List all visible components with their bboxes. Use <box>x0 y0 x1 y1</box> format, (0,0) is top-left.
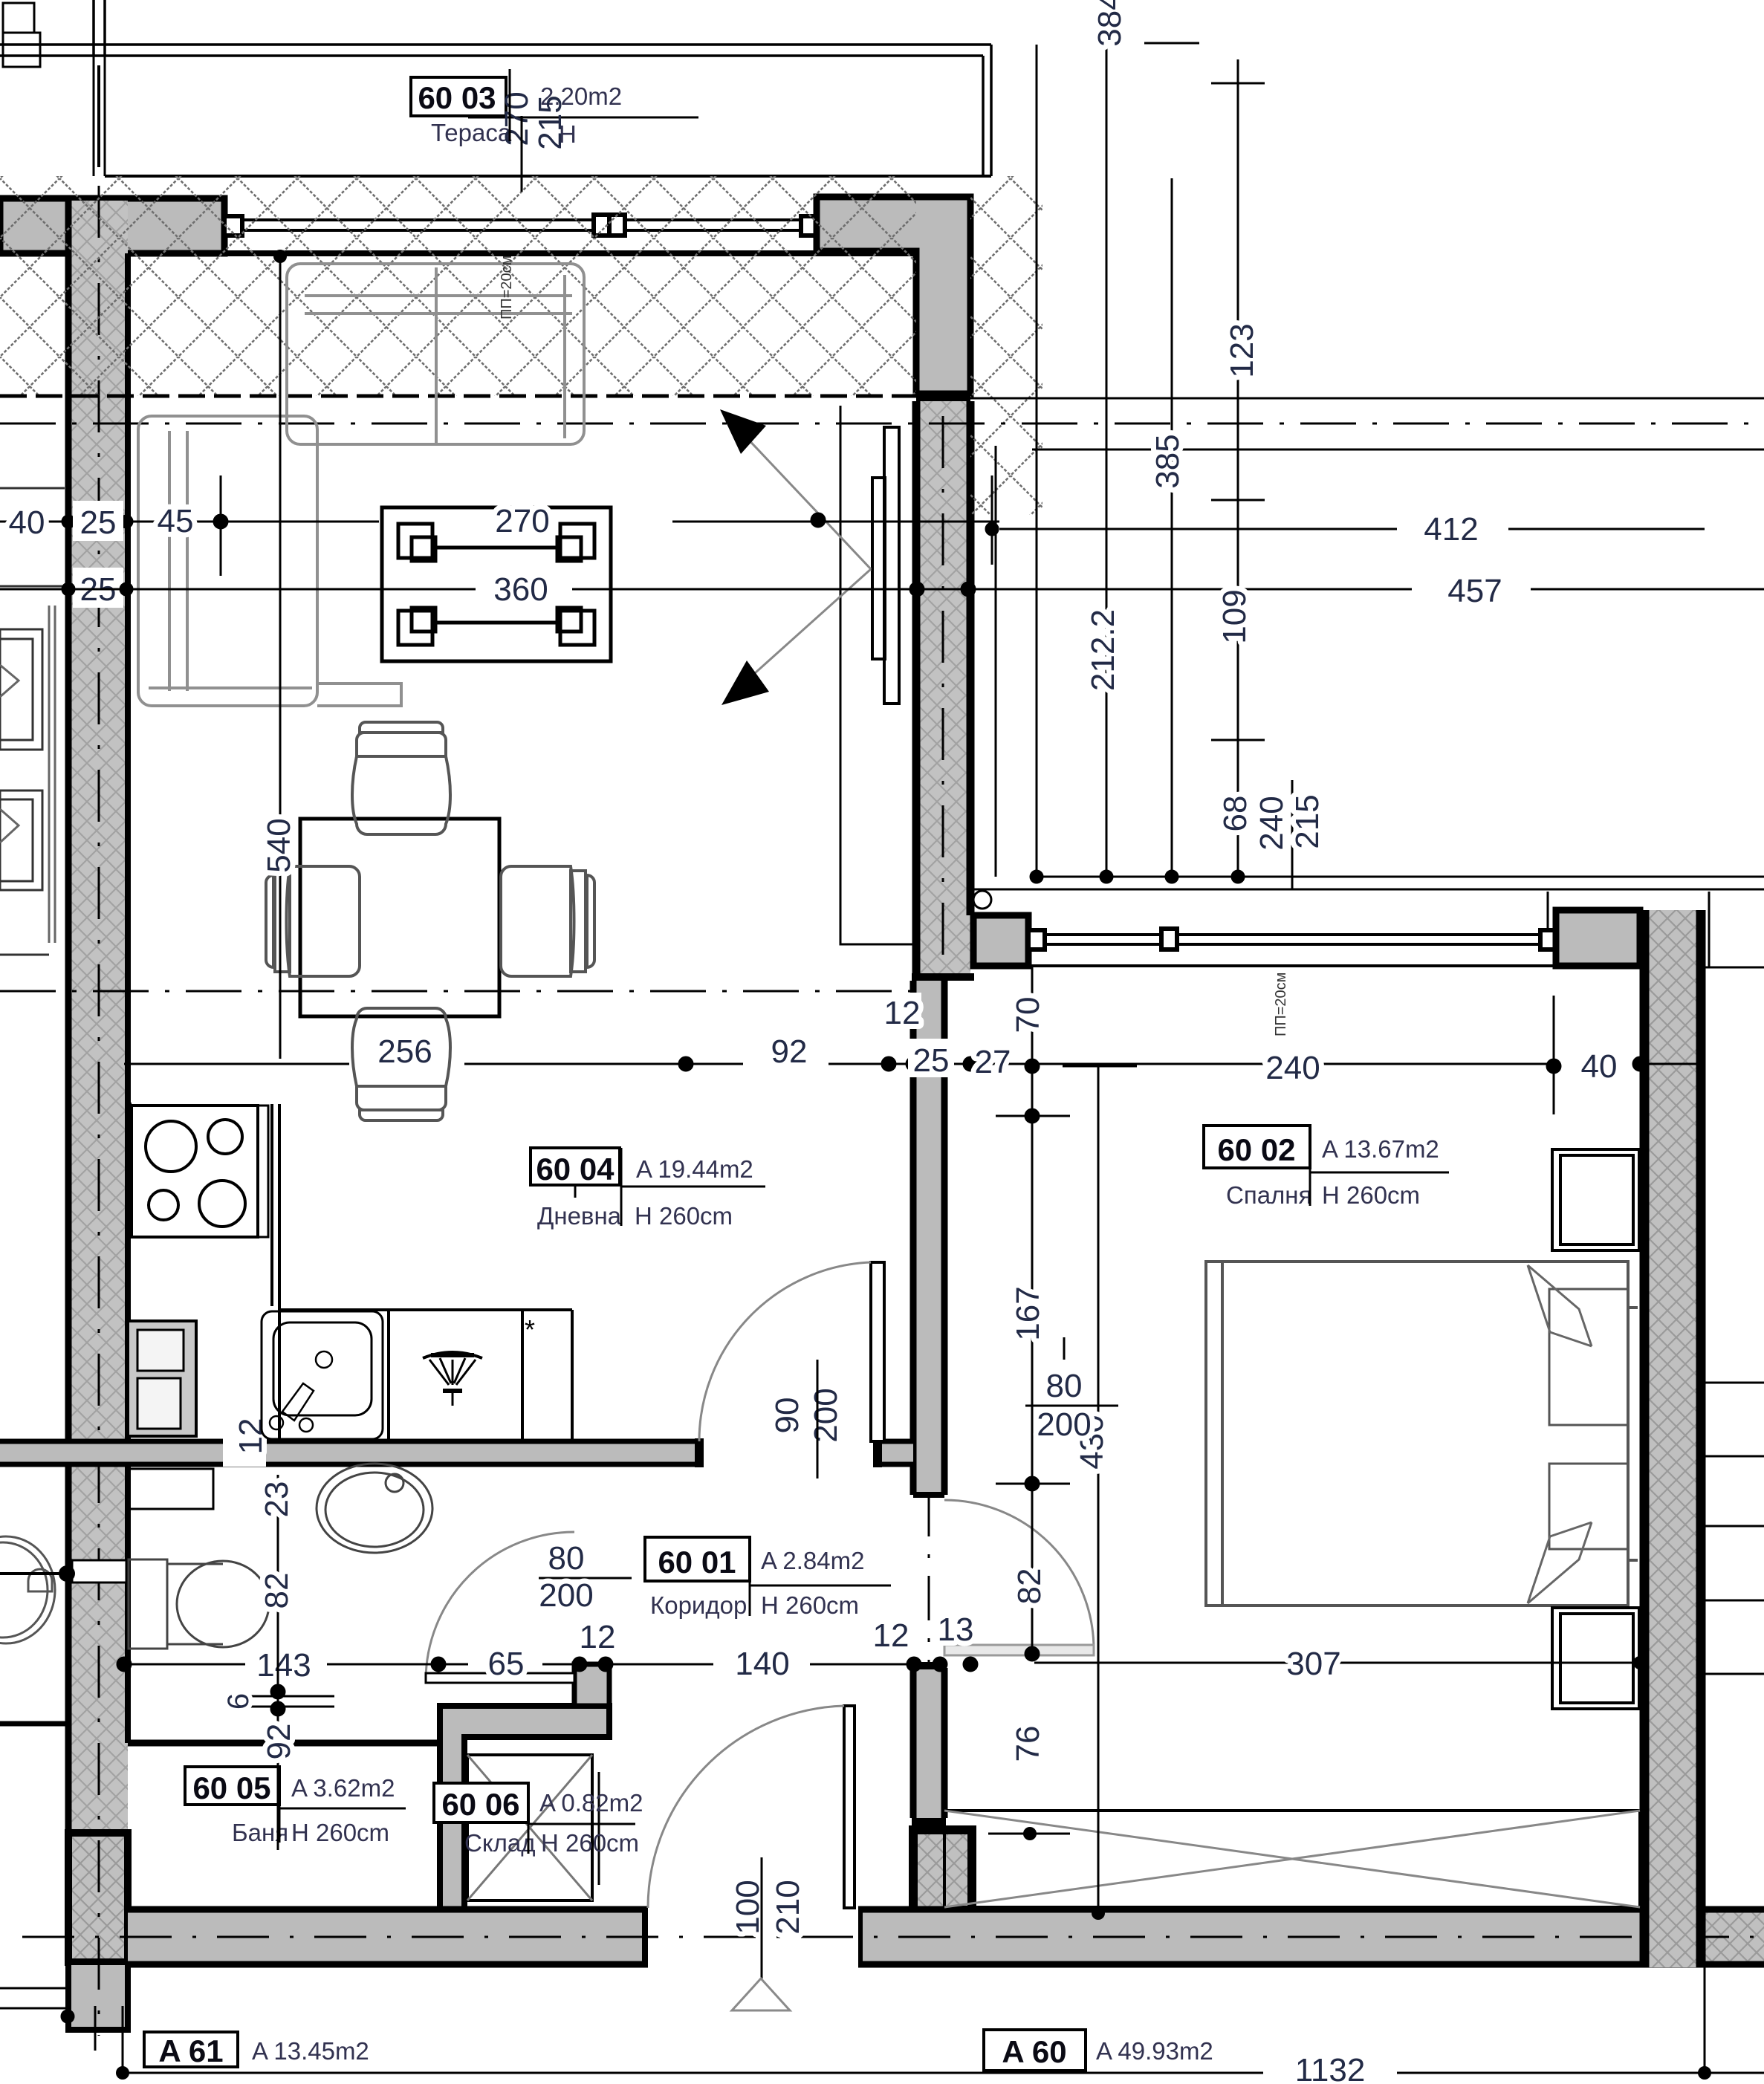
svg-text:68: 68 <box>1217 796 1254 832</box>
svg-text:6: 6 <box>222 1693 255 1710</box>
svg-text:23: 23 <box>259 1481 295 1518</box>
svg-text:360: 360 <box>493 571 548 608</box>
svg-text:ПП=20см: ПП=20см <box>499 256 515 319</box>
svg-text:200: 200 <box>539 1577 593 1614</box>
svg-text:40: 40 <box>1581 1048 1618 1085</box>
svg-text:60 01: 60 01 <box>658 1545 736 1580</box>
svg-text:240: 240 <box>1265 1050 1320 1086</box>
svg-text:76: 76 <box>1010 1726 1046 1762</box>
svg-text:385: 385 <box>1149 434 1186 488</box>
svg-text:80: 80 <box>548 1540 585 1577</box>
svg-text:384: 384 <box>1092 0 1128 47</box>
svg-text:A 60: A 60 <box>1002 2034 1066 2069</box>
svg-text:Дневна: Дневна <box>537 1202 622 1230</box>
svg-text:1132: 1132 <box>1295 2052 1366 2084</box>
svg-text:25: 25 <box>913 1042 950 1079</box>
svg-text:82: 82 <box>259 1573 295 1609</box>
svg-text:123: 123 <box>1224 323 1260 377</box>
svg-text:82: 82 <box>1011 1568 1048 1605</box>
svg-text:13: 13 <box>938 1611 974 1648</box>
svg-text:540: 540 <box>261 818 297 872</box>
svg-text:200: 200 <box>1037 1406 1091 1443</box>
svg-text:65: 65 <box>488 1646 525 1682</box>
svg-text:H 260cm: H 260cm <box>541 1829 639 1857</box>
svg-text:90: 90 <box>769 1398 805 1434</box>
svg-text:H 260cm: H 260cm <box>1322 1181 1420 1209</box>
svg-text:ПП=20см: ПП=20см <box>1273 973 1289 1036</box>
svg-text:*: * <box>525 1314 535 1345</box>
svg-text:A 0.82m2: A 0.82m2 <box>539 1789 643 1817</box>
svg-text:240: 240 <box>1254 796 1290 850</box>
svg-text:92: 92 <box>771 1033 808 1070</box>
svg-text:A 2.84m2: A 2.84m2 <box>761 1547 864 1574</box>
svg-text:212.2: 212.2 <box>1085 609 1121 691</box>
svg-text:270: 270 <box>499 91 535 146</box>
svg-text:H 260cm: H 260cm <box>291 1819 389 1846</box>
svg-text:12: 12 <box>873 1617 909 1654</box>
svg-text:H 260cm: H 260cm <box>761 1591 859 1619</box>
svg-text:A 3.62m2: A 3.62m2 <box>291 1774 395 1802</box>
svg-text:12: 12 <box>580 1619 616 1655</box>
svg-text:A 19.44m2: A 19.44m2 <box>636 1155 753 1183</box>
svg-text:Склад: Склад <box>464 1829 536 1857</box>
svg-text:307: 307 <box>1286 1646 1340 1682</box>
svg-text:27: 27 <box>975 1044 1011 1080</box>
svg-text:60 06: 60 06 <box>441 1787 519 1822</box>
svg-text:60 03: 60 03 <box>418 80 496 115</box>
svg-text:270: 270 <box>495 503 549 539</box>
svg-text:Спалня: Спалня <box>1226 1181 1311 1209</box>
svg-text:70: 70 <box>1010 997 1046 1033</box>
svg-text:40: 40 <box>9 504 45 541</box>
svg-text:215: 215 <box>532 95 568 149</box>
svg-text:143: 143 <box>256 1647 311 1684</box>
svg-text:H 260cm: H 260cm <box>635 1202 733 1230</box>
svg-text:109: 109 <box>1216 589 1253 643</box>
svg-text:210: 210 <box>770 1880 806 1934</box>
svg-text:256: 256 <box>377 1033 432 1070</box>
svg-text:457: 457 <box>1447 573 1502 609</box>
svg-text:A 49.93m2: A 49.93m2 <box>1096 2037 1213 2065</box>
svg-text:A 13.67m2: A 13.67m2 <box>1322 1135 1439 1163</box>
svg-text:412: 412 <box>1424 511 1478 548</box>
svg-text:25: 25 <box>80 504 117 541</box>
svg-text:12: 12 <box>884 995 921 1031</box>
svg-text:60 02: 60 02 <box>1217 1132 1295 1167</box>
svg-text:92: 92 <box>261 1724 297 1760</box>
svg-text:60 05: 60 05 <box>192 1770 270 1805</box>
svg-text:167: 167 <box>1010 1286 1046 1340</box>
svg-text:45: 45 <box>158 503 194 539</box>
svg-text:A 13.45m2: A 13.45m2 <box>252 2037 369 2065</box>
svg-text:60 04: 60 04 <box>536 1152 615 1187</box>
svg-text:Коридор: Коридор <box>650 1591 747 1619</box>
svg-text:A 61: A 61 <box>158 2033 223 2068</box>
svg-text:215: 215 <box>1289 794 1326 848</box>
svg-text:200: 200 <box>808 1388 844 1442</box>
svg-text:80: 80 <box>1046 1368 1083 1404</box>
svg-text:140: 140 <box>735 1646 789 1682</box>
